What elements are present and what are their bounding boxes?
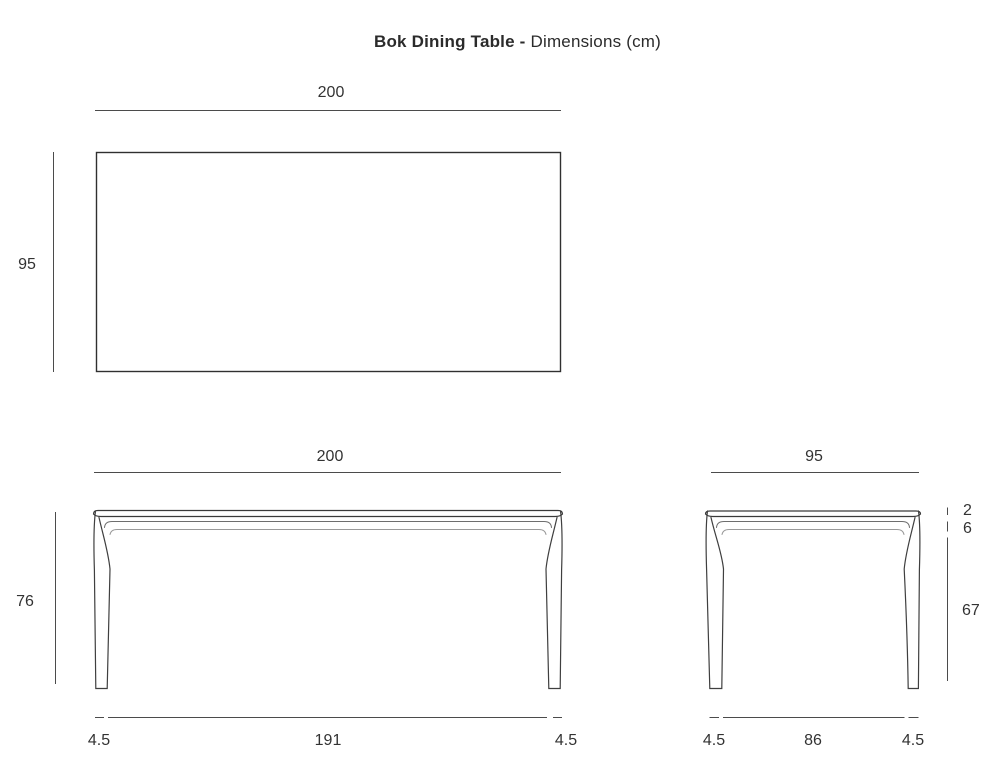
top-view-width-label: 200 bbox=[318, 84, 345, 101]
side-span-label: 86 bbox=[804, 732, 822, 749]
front-width-label: 200 bbox=[317, 448, 344, 465]
front-right-leg bbox=[546, 511, 562, 689]
top-view-tabletop-outline bbox=[97, 153, 561, 372]
side-left-leg bbox=[706, 511, 723, 689]
front-elevation: 200 76 4.5 191 4.5 bbox=[16, 448, 577, 749]
side-apron-lower-line bbox=[722, 530, 904, 535]
side-width-label: 95 bbox=[805, 448, 823, 465]
dimension-sheet: Bok Dining Table - Dimensions (cm) 200 9… bbox=[0, 0, 1001, 776]
side-elevation: 95 2 6 67 4.5 86 4.5 bbox=[703, 448, 980, 749]
front-apron-upper-line bbox=[105, 522, 552, 528]
side-top-thickness-label: 2 bbox=[963, 502, 972, 519]
top-view: 200 95 bbox=[18, 84, 561, 372]
front-leg-left-label: 4.5 bbox=[88, 732, 110, 749]
side-leg-left-label: 4.5 bbox=[703, 732, 725, 749]
technical-drawing: 200 95 200 76 4.5 191 4.5 bbox=[0, 0, 1001, 776]
side-apron-label: 6 bbox=[963, 520, 972, 537]
front-apron-lower-line bbox=[110, 530, 546, 535]
front-tabletop bbox=[94, 511, 563, 517]
front-leg-right-label: 4.5 bbox=[555, 732, 577, 749]
side-leg-right-label: 4.5 bbox=[902, 732, 924, 749]
front-left-leg bbox=[94, 511, 110, 689]
front-height-label: 76 bbox=[16, 593, 34, 610]
front-span-label: 191 bbox=[315, 732, 342, 749]
side-apron-upper-line bbox=[717, 522, 910, 528]
side-right-leg bbox=[904, 511, 920, 689]
side-tabletop bbox=[706, 511, 921, 517]
side-leg-height-label: 67 bbox=[962, 602, 980, 619]
top-view-depth-label: 95 bbox=[18, 256, 36, 273]
